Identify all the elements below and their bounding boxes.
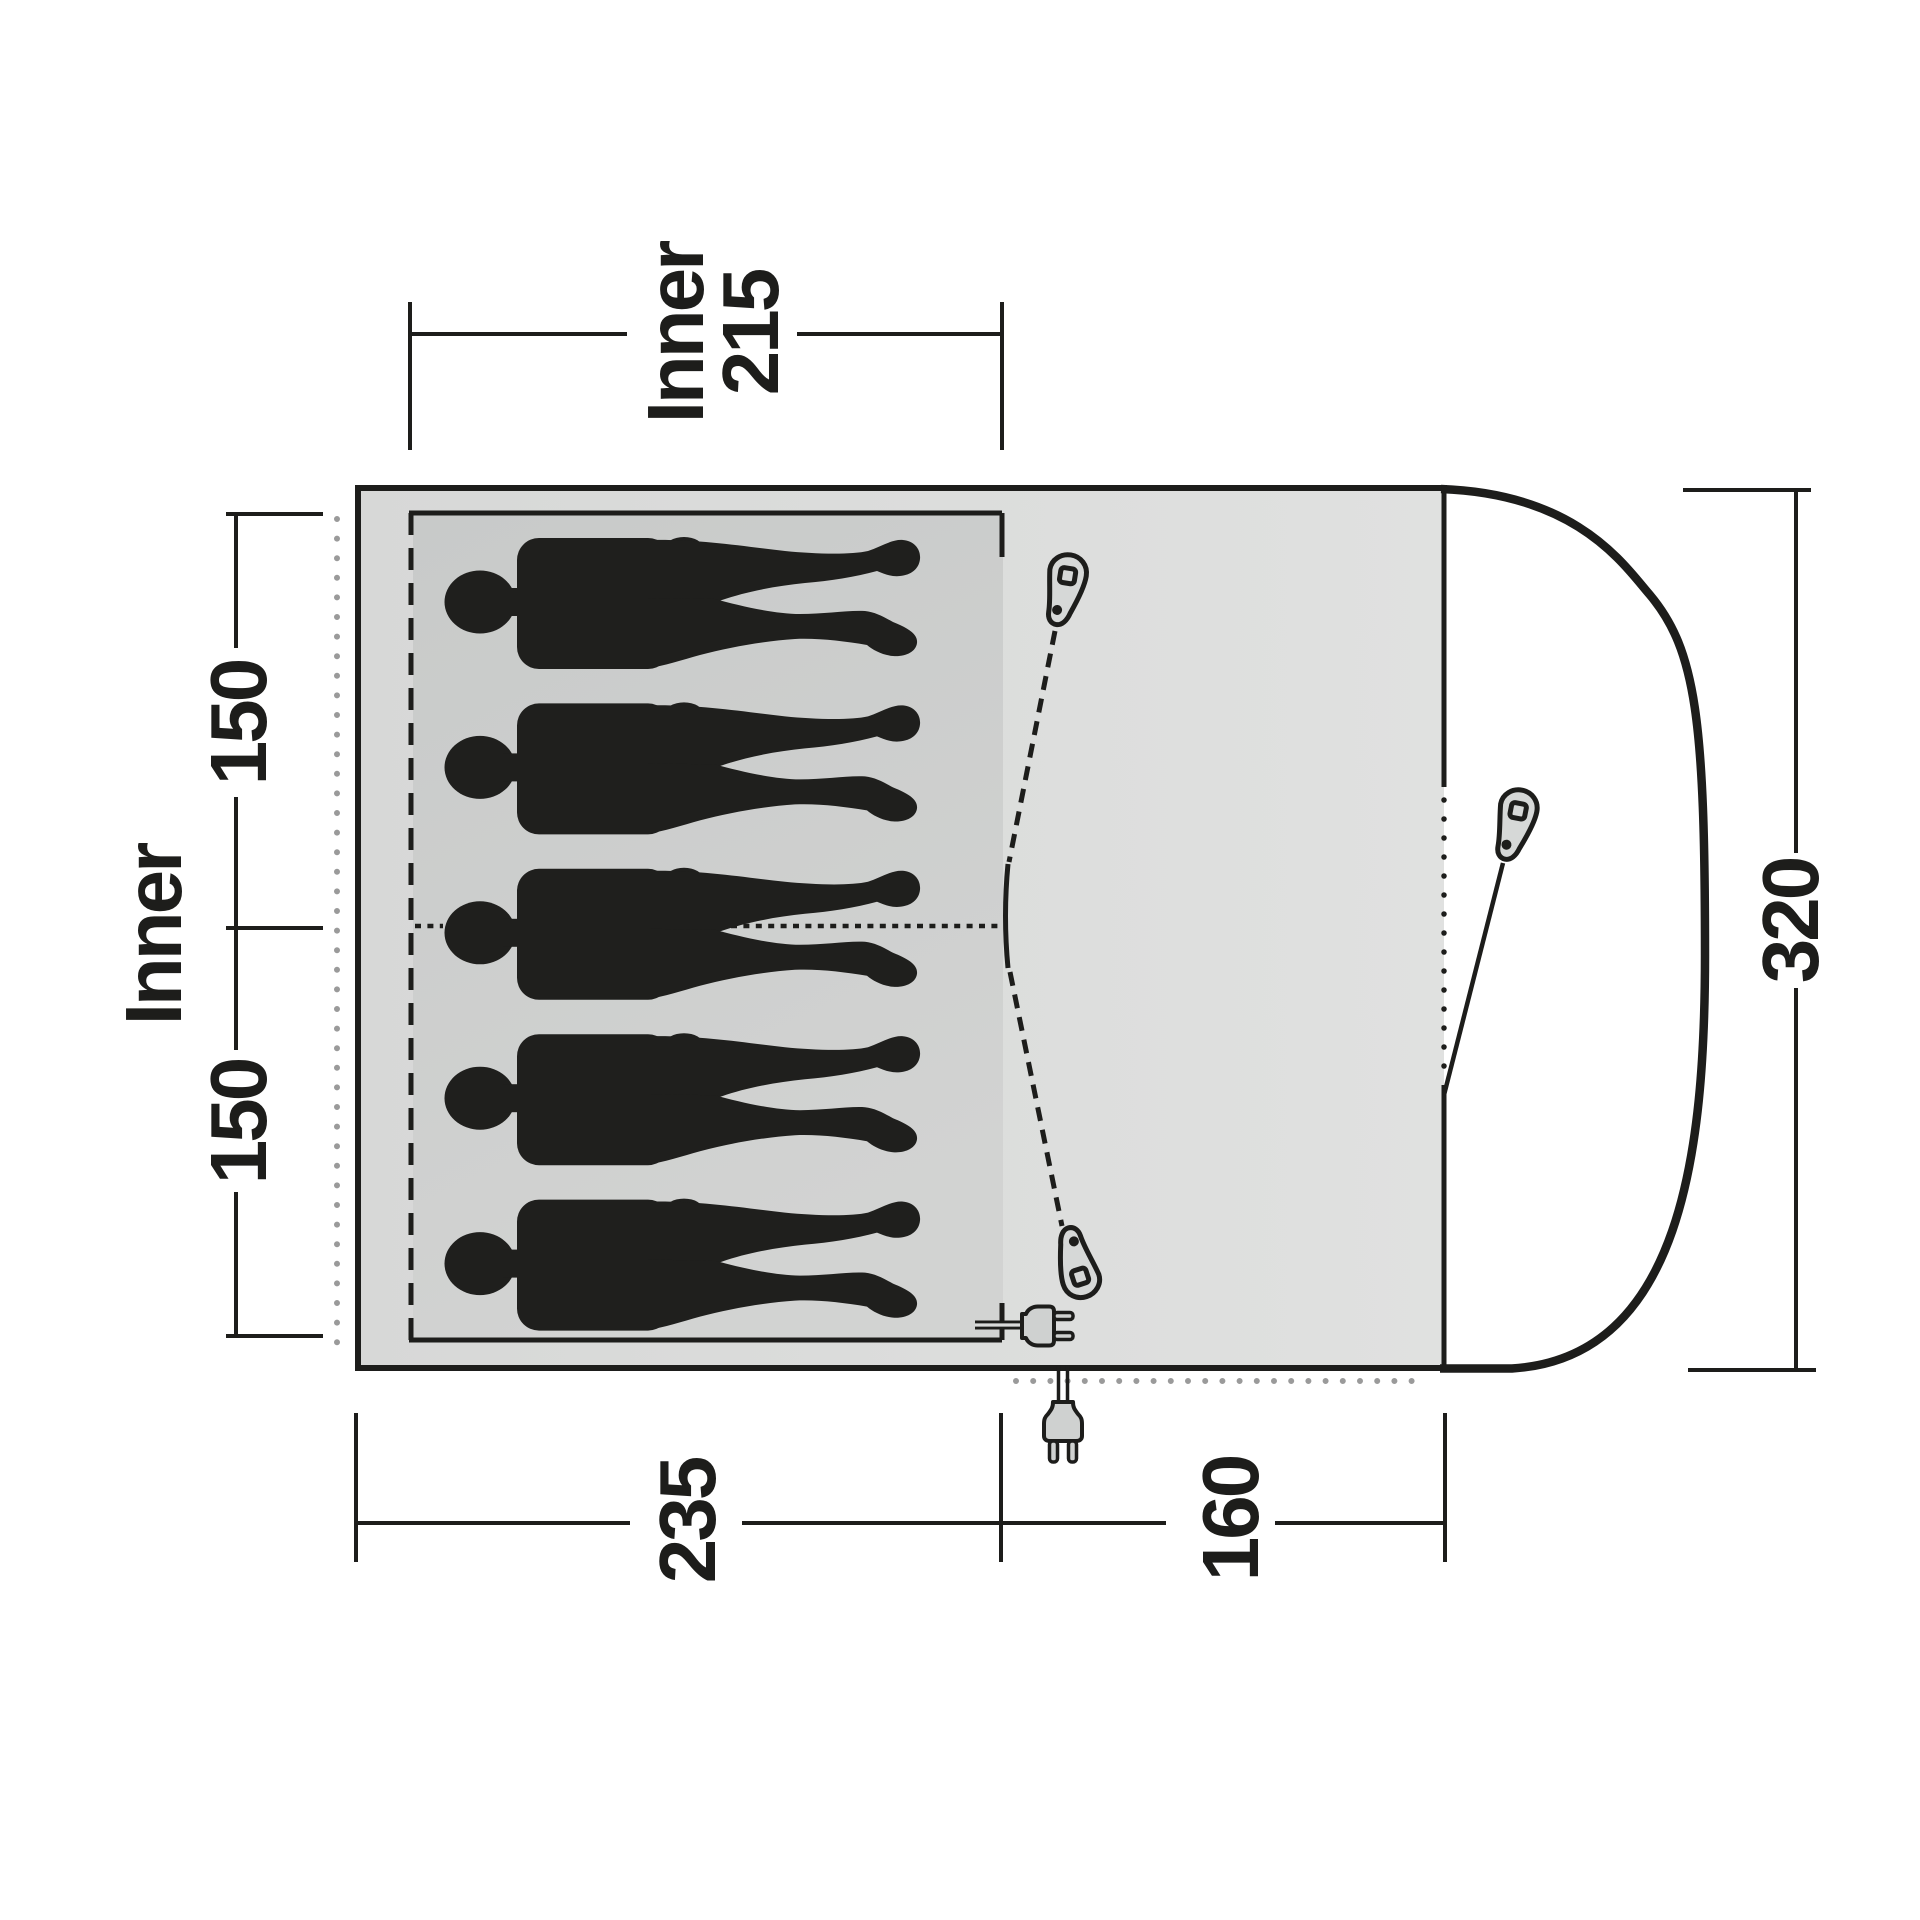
svg-text:Inner: Inner [109,843,198,1025]
svg-text:215: 215 [706,269,795,395]
svg-text:235: 235 [643,1457,732,1583]
svg-text:160: 160 [1186,1456,1275,1581]
svg-text:150: 150 [194,1059,283,1184]
svg-text:320: 320 [1746,858,1835,983]
svg-text:150: 150 [194,660,283,785]
